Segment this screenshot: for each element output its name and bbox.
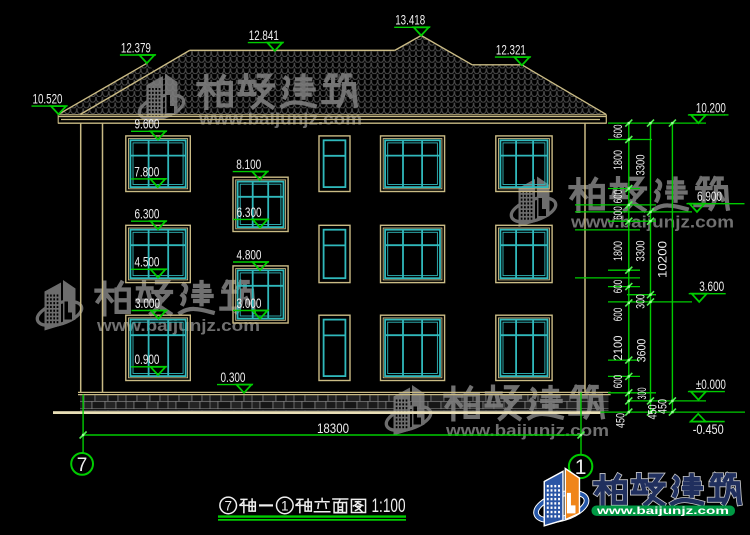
svg-text:1: 1 <box>281 498 289 513</box>
svg-text:8.100: 8.100 <box>236 156 261 172</box>
svg-text:300: 300 <box>637 388 649 400</box>
svg-text:www.baijunjz.com: www.baijunjz.com <box>596 505 729 517</box>
svg-text:3.000: 3.000 <box>237 295 262 311</box>
svg-text:600: 600 <box>613 375 625 389</box>
svg-text:3300: 3300 <box>636 155 648 176</box>
svg-text:1800: 1800 <box>613 241 625 261</box>
svg-text:7: 7 <box>224 498 232 513</box>
svg-text:6.300: 6.300 <box>135 206 160 222</box>
svg-text:1800: 1800 <box>613 150 625 170</box>
svg-text:www.baijunjz.com: www.baijunjz.com <box>570 214 734 232</box>
svg-text:www.baijunjz.com: www.baijunjz.com <box>445 422 609 440</box>
svg-text:18300: 18300 <box>317 420 349 436</box>
svg-text:12.321: 12.321 <box>496 42 526 58</box>
svg-text:600: 600 <box>613 206 625 220</box>
svg-text:3.600: 3.600 <box>699 278 724 294</box>
svg-text:6.900: 6.900 <box>697 188 722 204</box>
svg-text:12.379: 12.379 <box>121 39 151 55</box>
svg-text:300: 300 <box>636 294 648 309</box>
svg-text:4.800: 4.800 <box>237 246 262 262</box>
svg-text:450: 450 <box>616 413 628 428</box>
svg-text:600: 600 <box>613 308 625 322</box>
svg-text:600: 600 <box>613 125 625 139</box>
svg-text:3600: 3600 <box>637 339 649 363</box>
svg-text:1:100: 1:100 <box>372 496 406 517</box>
svg-text:2100: 2100 <box>613 336 625 361</box>
svg-text:±0.000: ±0.000 <box>696 376 726 392</box>
svg-text:600: 600 <box>613 190 625 204</box>
svg-text:7: 7 <box>77 455 88 476</box>
svg-text:0.900: 0.900 <box>135 351 160 367</box>
svg-text:7.800: 7.800 <box>134 163 159 179</box>
svg-text:10200: 10200 <box>658 241 670 278</box>
svg-text:-0.450: -0.450 <box>693 421 724 437</box>
svg-text:9.600: 9.600 <box>135 116 160 132</box>
svg-text:3.000: 3.000 <box>135 295 160 311</box>
svg-text:12.841: 12.841 <box>249 27 279 43</box>
svg-text:10.520: 10.520 <box>33 91 63 107</box>
svg-text:4.500: 4.500 <box>135 254 160 270</box>
svg-text:450: 450 <box>658 399 670 414</box>
svg-text:600: 600 <box>613 280 625 294</box>
svg-text:10.200: 10.200 <box>696 99 726 115</box>
svg-text:13.418: 13.418 <box>395 12 425 28</box>
svg-text:6.300: 6.300 <box>237 204 262 220</box>
svg-text:0.300: 0.300 <box>221 369 246 385</box>
svg-text:3300: 3300 <box>636 241 648 262</box>
